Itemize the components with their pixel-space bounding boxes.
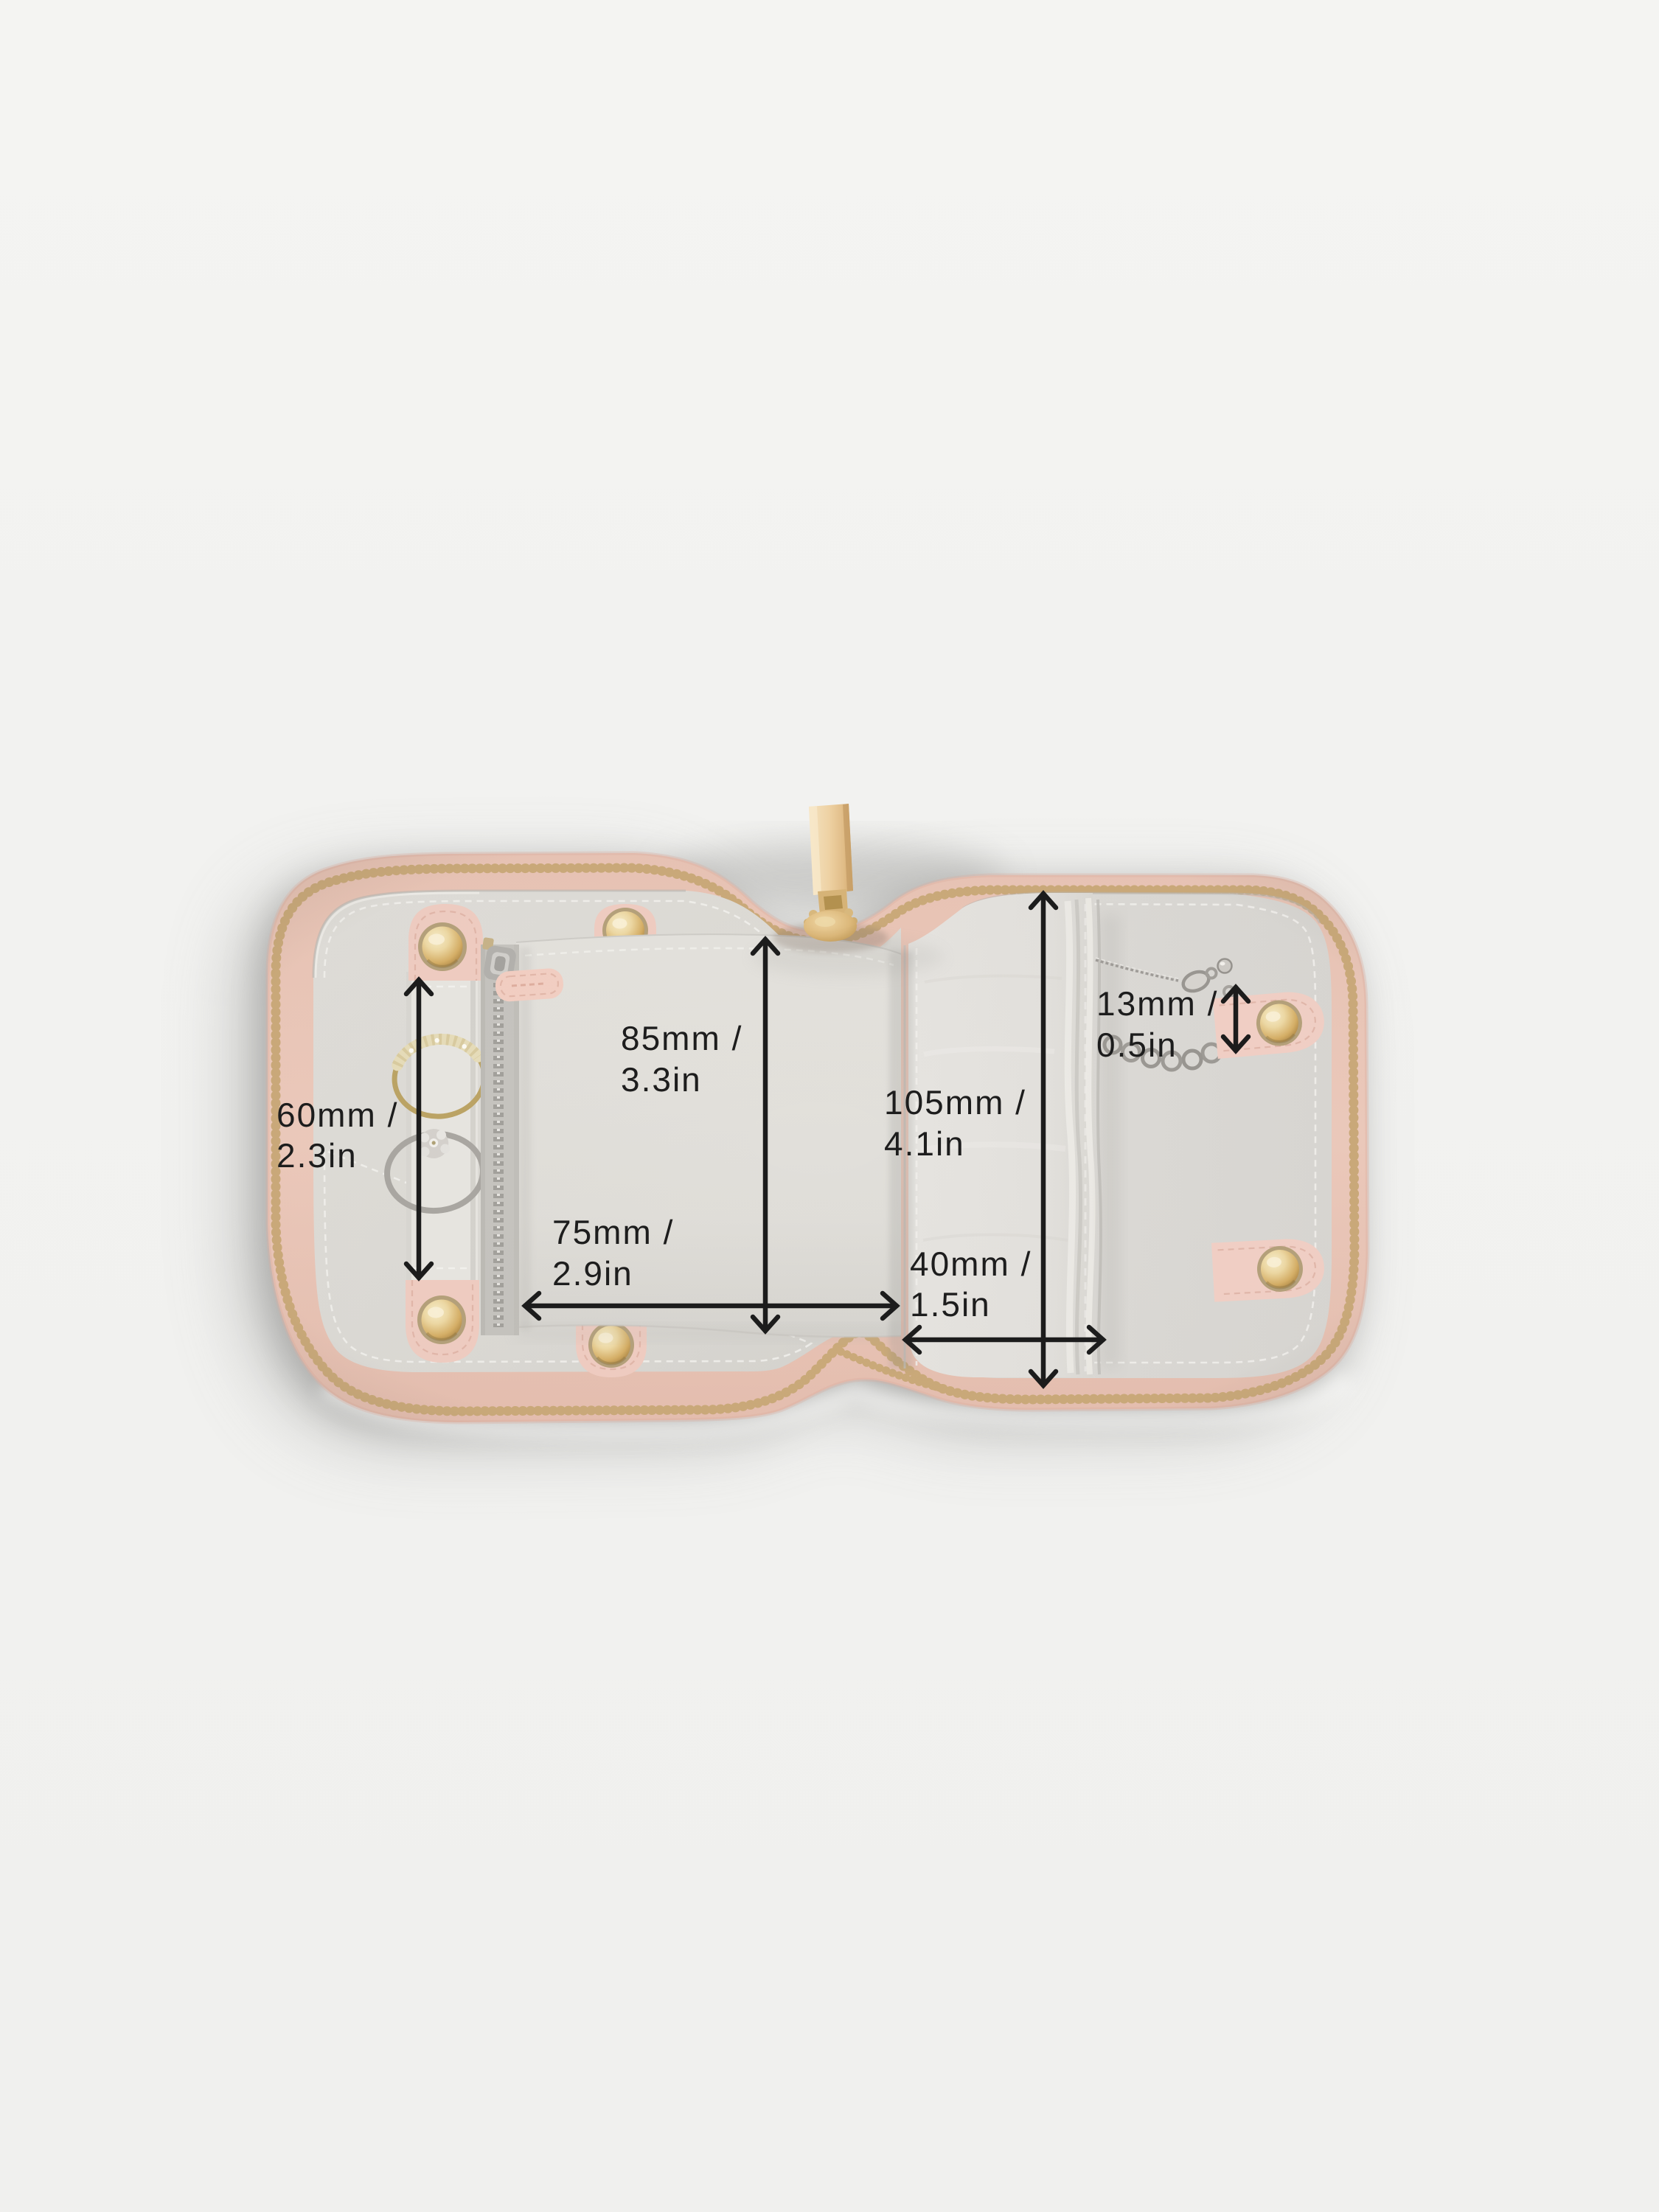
- svg-text:3.3in: 3.3in: [621, 1060, 702, 1099]
- svg-text:40mm /: 40mm /: [910, 1245, 1032, 1283]
- svg-text:85mm /: 85mm /: [621, 1019, 742, 1057]
- svg-text:2.9in: 2.9in: [552, 1254, 633, 1293]
- svg-text:60mm /: 60mm /: [276, 1096, 398, 1134]
- svg-text:2.3in: 2.3in: [276, 1136, 358, 1175]
- svg-text:13mm /: 13mm /: [1096, 984, 1218, 1023]
- svg-text:4.1in: 4.1in: [884, 1124, 965, 1163]
- svg-text:0.5in: 0.5in: [1096, 1026, 1178, 1064]
- svg-text:1.5in: 1.5in: [910, 1285, 991, 1324]
- svg-text:105mm /: 105mm /: [884, 1083, 1026, 1121]
- svg-text:75mm /: 75mm /: [552, 1213, 674, 1251]
